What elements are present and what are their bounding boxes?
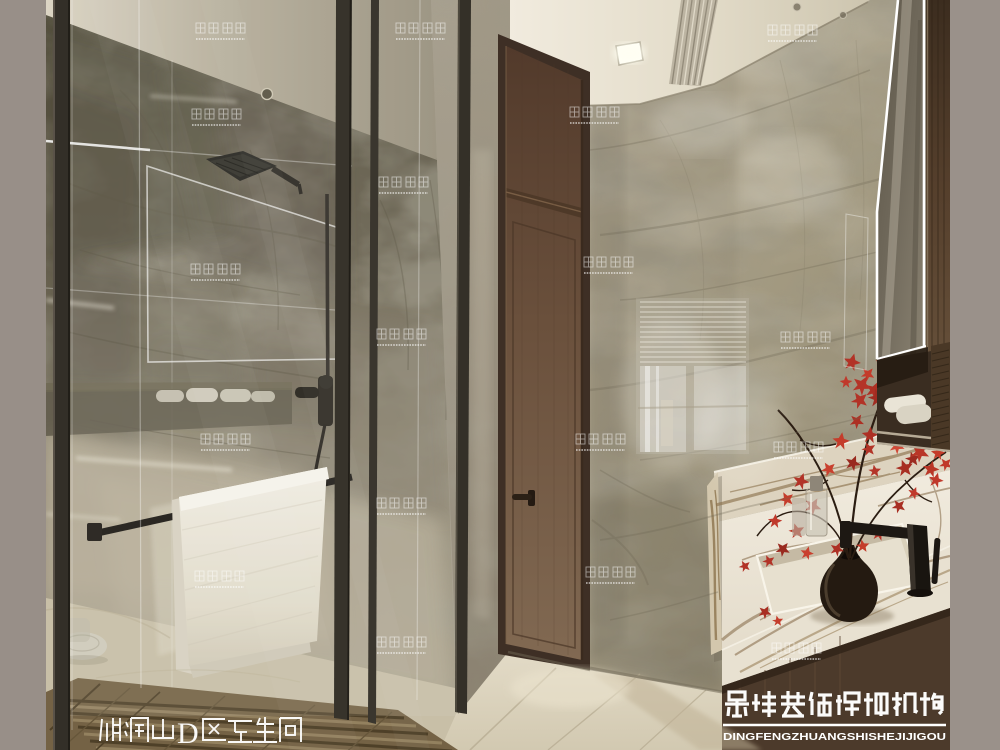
svg-text:DINGFENGZHUANGSHISHEJIJIGOU: DINGFENGZHUANGSHISHEJIJIGOU (723, 732, 946, 743)
svg-text:D: D (177, 717, 199, 750)
